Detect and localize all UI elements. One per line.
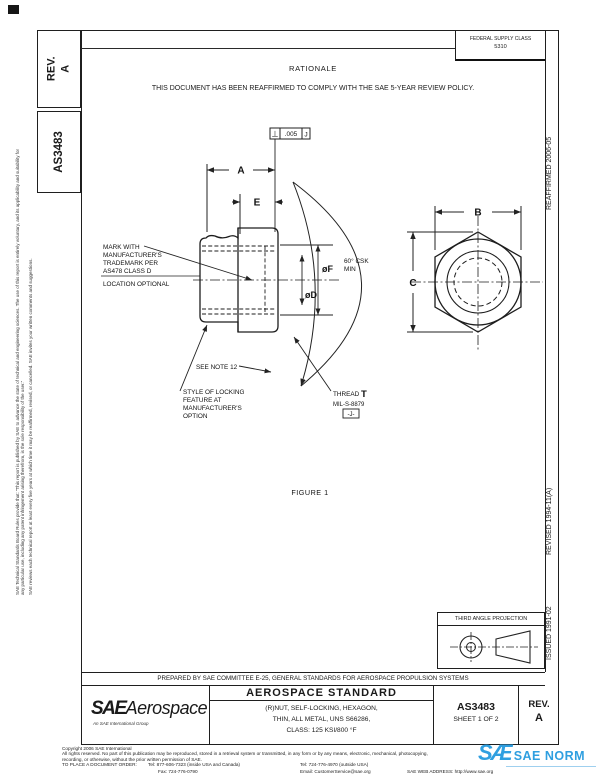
doc-number: AS3483 xyxy=(434,701,518,713)
federal-supply-class-label: FEDERAL SUPPLY CLASS xyxy=(456,36,545,42)
csk-angle-arcs xyxy=(293,182,362,386)
federal-supply-class-box: FEDERAL SUPPLY CLASS 5310 xyxy=(455,30,545,61)
order-label: TO PLACE A DOCUMENT ORDER: xyxy=(62,762,137,767)
standard-type: AEROSPACE STANDARD xyxy=(210,686,433,701)
sae-logo-tagline: An SAE International Group xyxy=(93,721,209,726)
fcf-datum: J xyxy=(304,131,307,138)
document-page: SAE Technical Standards Board Rules prov… xyxy=(0,0,600,776)
standard-title-line-2: THIN, ALL METAL, UNS S66286, xyxy=(210,716,433,723)
rev-sidebar-value: A xyxy=(59,57,73,82)
dimension-a: A xyxy=(207,164,275,232)
standard-title-line-1: (R)NUT, SELF-LOCKING, HEXAGON, xyxy=(210,705,433,712)
fcf-tolerance: .005 xyxy=(285,131,298,138)
dim-a-label: A xyxy=(237,166,244,177)
sae-norm-underline xyxy=(506,766,596,767)
dim-c-label: C xyxy=(409,278,416,289)
rev-label: REV. xyxy=(519,699,559,710)
figure-caption: FIGURE 1 xyxy=(291,488,328,497)
title-block-number-cell: AS3483 SHEET 1 OF 2 xyxy=(433,686,518,745)
sheet-number: SHEET 1 OF 2 xyxy=(434,716,518,723)
sae-norm-watermark: SÆ SAE NORM xyxy=(478,742,600,776)
figure-1-drawing: ⊥ .005 J A E xyxy=(81,120,545,520)
dim-b-label: B xyxy=(474,208,481,219)
svg-text:MARK WITH: MARK WITH xyxy=(103,244,140,251)
doc-number-sidebar: AS3483 xyxy=(53,131,65,173)
disclaimer-paragraph-1: SAE Technical Standards Board Rules prov… xyxy=(15,145,25,595)
rev-sidebar-box: REV. A xyxy=(37,30,81,108)
projection-title: THIRD ANGLE PROJECTION xyxy=(438,613,544,626)
title-block: SAEAerospace An SAE International Group … xyxy=(81,686,559,745)
title-block-title-cell: AEROSPACE STANDARD (R)NUT, SELF-LOCKING,… xyxy=(209,686,433,745)
federal-supply-class-value: 5310 xyxy=(456,44,545,50)
svg-text:AS478 CLASS D: AS478 CLASS D xyxy=(103,268,152,275)
svg-text:LOCATION OPTIONAL: LOCATION OPTIONAL xyxy=(103,281,170,288)
locking-feature-note: STYLE OF LOCKING FEATURE AT MANUFACTURER… xyxy=(180,325,244,420)
see-note-12: SEE NOTE 12 xyxy=(196,364,271,372)
registration-mark xyxy=(8,5,19,14)
title-block-logo-cell: SAEAerospace An SAE International Group xyxy=(81,686,209,745)
tel-inside: Tel: 877-606-7323 (inside USA and Canada… xyxy=(148,762,240,767)
dia-d-label: øD xyxy=(305,290,317,300)
prepared-by-band: PREPARED BY SAE COMMITTEE E-25, GENERAL … xyxy=(81,672,545,686)
thread-letter: T xyxy=(361,389,367,400)
rev-sidebar-label: REV. xyxy=(45,57,59,82)
tel-outside: Tel: 724-776-4970 (outside USA) xyxy=(300,762,368,767)
svg-text:MIN: MIN xyxy=(344,266,356,273)
standard-title-line-3: CLASS: 125 KSI/800 °F xyxy=(210,727,433,734)
doc-number-sidebar-box: AS3483 xyxy=(37,111,81,193)
disclaimer-paragraph-2: SAE reviews each technical report at lea… xyxy=(28,145,33,595)
svg-text:SEE NOTE 12: SEE NOTE 12 xyxy=(196,364,238,371)
aerospace-logo-text: Aerospace xyxy=(126,698,208,718)
csk-note: 60° CSK MIN xyxy=(344,257,369,273)
svg-text:TRADEMARK PER: TRADEMARK PER xyxy=(103,260,158,267)
sae-norm-logo-glyph: SÆ xyxy=(478,742,511,764)
sae-logo: SAE xyxy=(91,698,126,719)
third-angle-projection-icon xyxy=(438,626,544,668)
dim-e-label: E xyxy=(254,198,261,209)
rationale-body: THIS DOCUMENT HAS BEEN REAFFIRMED TO COM… xyxy=(81,85,545,92)
right-column-rule xyxy=(545,30,546,672)
header-rule xyxy=(81,48,455,49)
nut-end-view xyxy=(411,216,543,350)
svg-text:MANUFACTURER'S: MANUFACTURER'S xyxy=(103,252,162,259)
rev-value: A xyxy=(519,712,559,724)
thread-label: THREAD xyxy=(333,391,360,398)
title-block-rev-cell: REV. A xyxy=(518,686,559,745)
nut-side-view xyxy=(193,228,339,332)
left-margin-disclaimer: SAE Technical Standards Board Rules prov… xyxy=(15,145,37,595)
svg-text:MANUFACTURER'S: MANUFACTURER'S xyxy=(183,405,242,412)
dimension-b: B xyxy=(435,206,521,250)
prepared-by-text: PREPARED BY SAE COMMITTEE E-25, GENERAL … xyxy=(81,673,545,685)
thread-spec: MIL-S-8879 xyxy=(333,402,365,408)
email-address: Email: CustomerService@sae.org xyxy=(300,769,371,774)
feature-control-frame: ⊥ .005 J xyxy=(270,128,310,232)
sae-norm-text: SAE NORM xyxy=(514,749,585,763)
svg-text:OPTION: OPTION xyxy=(183,413,208,420)
third-angle-projection-box: THIRD ANGLE PROJECTION xyxy=(437,612,545,669)
fax-number: Fax: 724-776-0790 xyxy=(158,769,198,774)
fcf-symbol: ⊥ xyxy=(272,130,279,139)
svg-text:FEATURE AT: FEATURE AT xyxy=(183,397,222,404)
svg-text:STYLE OF LOCKING: STYLE OF LOCKING xyxy=(183,389,244,396)
datum-flag: -J- xyxy=(348,412,355,418)
thread-callout: THREAD T MIL-S-8879 -J- xyxy=(294,337,367,418)
svg-text:60° CSK: 60° CSK xyxy=(344,257,369,265)
dia-f-label: øF xyxy=(322,264,333,274)
rationale-title: RATIONALE xyxy=(81,64,545,73)
